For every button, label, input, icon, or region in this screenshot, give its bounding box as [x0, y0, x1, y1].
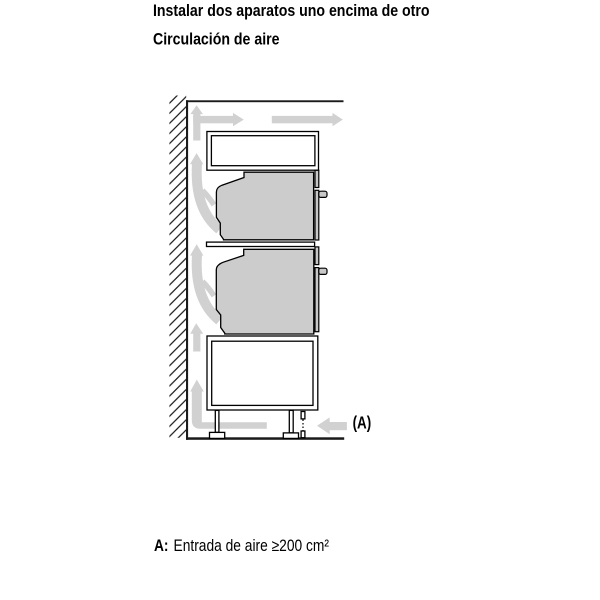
- svg-text:(A): (A): [353, 413, 372, 433]
- svg-text:Circulación de aire: Circulación de aire: [153, 31, 280, 49]
- svg-text:Instalar dos aparatos uno enci: Instalar dos aparatos uno encima de otro: [153, 2, 430, 20]
- svg-text:Entrada de aire ≥200 cm²: Entrada de aire ≥200 cm²: [174, 537, 330, 555]
- svg-text:A:: A:: [154, 537, 169, 555]
